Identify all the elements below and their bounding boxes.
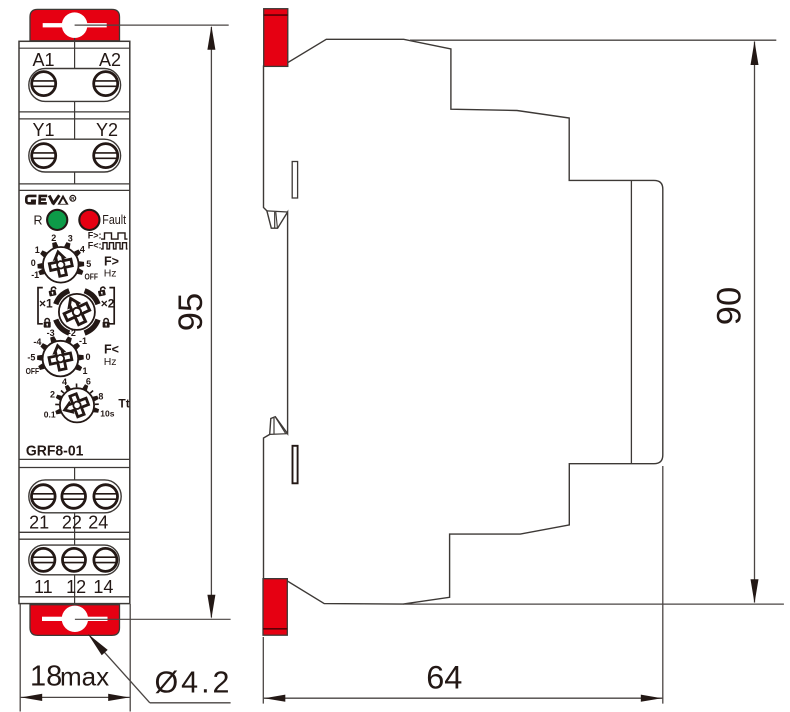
svg-text:10s: 10s <box>100 409 114 419</box>
svg-text:F<: F< <box>104 343 119 357</box>
svg-text:4: 4 <box>80 244 85 254</box>
svg-text:14: 14 <box>93 577 113 597</box>
svg-text:Ø4.2: Ø4.2 <box>155 666 230 700</box>
svg-text:max: max <box>60 661 109 691</box>
svg-text:-5: -5 <box>27 353 35 363</box>
svg-text:-3: -3 <box>47 328 55 338</box>
svg-text:Hz: Hz <box>104 268 117 280</box>
svg-text:4: 4 <box>62 377 67 387</box>
svg-text:F>:: F>: <box>88 231 102 241</box>
svg-text:8: 8 <box>98 391 103 401</box>
svg-text:0: 0 <box>85 352 90 362</box>
svg-text:×2: ×2 <box>101 297 115 311</box>
svg-text:-4: -4 <box>33 337 41 347</box>
svg-text:A1: A1 <box>32 50 54 70</box>
svg-text:A2: A2 <box>99 50 121 70</box>
svg-text:Y2: Y2 <box>96 120 118 140</box>
svg-text:3: 3 <box>68 233 73 243</box>
svg-text:0: 0 <box>31 258 36 268</box>
svg-text:0.1: 0.1 <box>44 410 56 420</box>
svg-text:1: 1 <box>35 245 40 255</box>
svg-text:11: 11 <box>34 577 53 597</box>
svg-text:Fault: Fault <box>102 212 126 227</box>
svg-text:12: 12 <box>66 577 86 597</box>
svg-text:95: 95 <box>172 293 210 331</box>
svg-text:2: 2 <box>50 390 55 400</box>
svg-text:F>: F> <box>104 255 119 269</box>
svg-text:×1: ×1 <box>39 297 53 311</box>
svg-text:Y1: Y1 <box>32 120 54 140</box>
svg-text:6: 6 <box>86 377 91 387</box>
svg-text:F<:: F<: <box>88 240 102 250</box>
svg-text:22: 22 <box>62 513 82 533</box>
svg-text:5: 5 <box>86 259 91 269</box>
svg-text:-1: -1 <box>79 336 87 346</box>
svg-text:-2: -2 <box>68 328 76 338</box>
svg-text:Tt: Tt <box>118 397 129 411</box>
svg-text:64: 64 <box>426 660 462 696</box>
svg-text:2: 2 <box>51 233 56 243</box>
svg-text:24: 24 <box>88 513 108 533</box>
svg-text:OFF: OFF <box>26 366 40 376</box>
svg-text:18: 18 <box>30 660 62 692</box>
svg-text:90: 90 <box>711 287 749 325</box>
svg-text:OFF: OFF <box>85 271 99 281</box>
svg-text:1: 1 <box>82 366 87 376</box>
svg-text:R: R <box>33 214 42 228</box>
svg-text:21: 21 <box>29 513 49 533</box>
svg-text:Hz: Hz <box>104 356 117 368</box>
svg-text:-1: -1 <box>31 270 39 280</box>
svg-text:GRF8-01: GRF8-01 <box>26 444 84 460</box>
